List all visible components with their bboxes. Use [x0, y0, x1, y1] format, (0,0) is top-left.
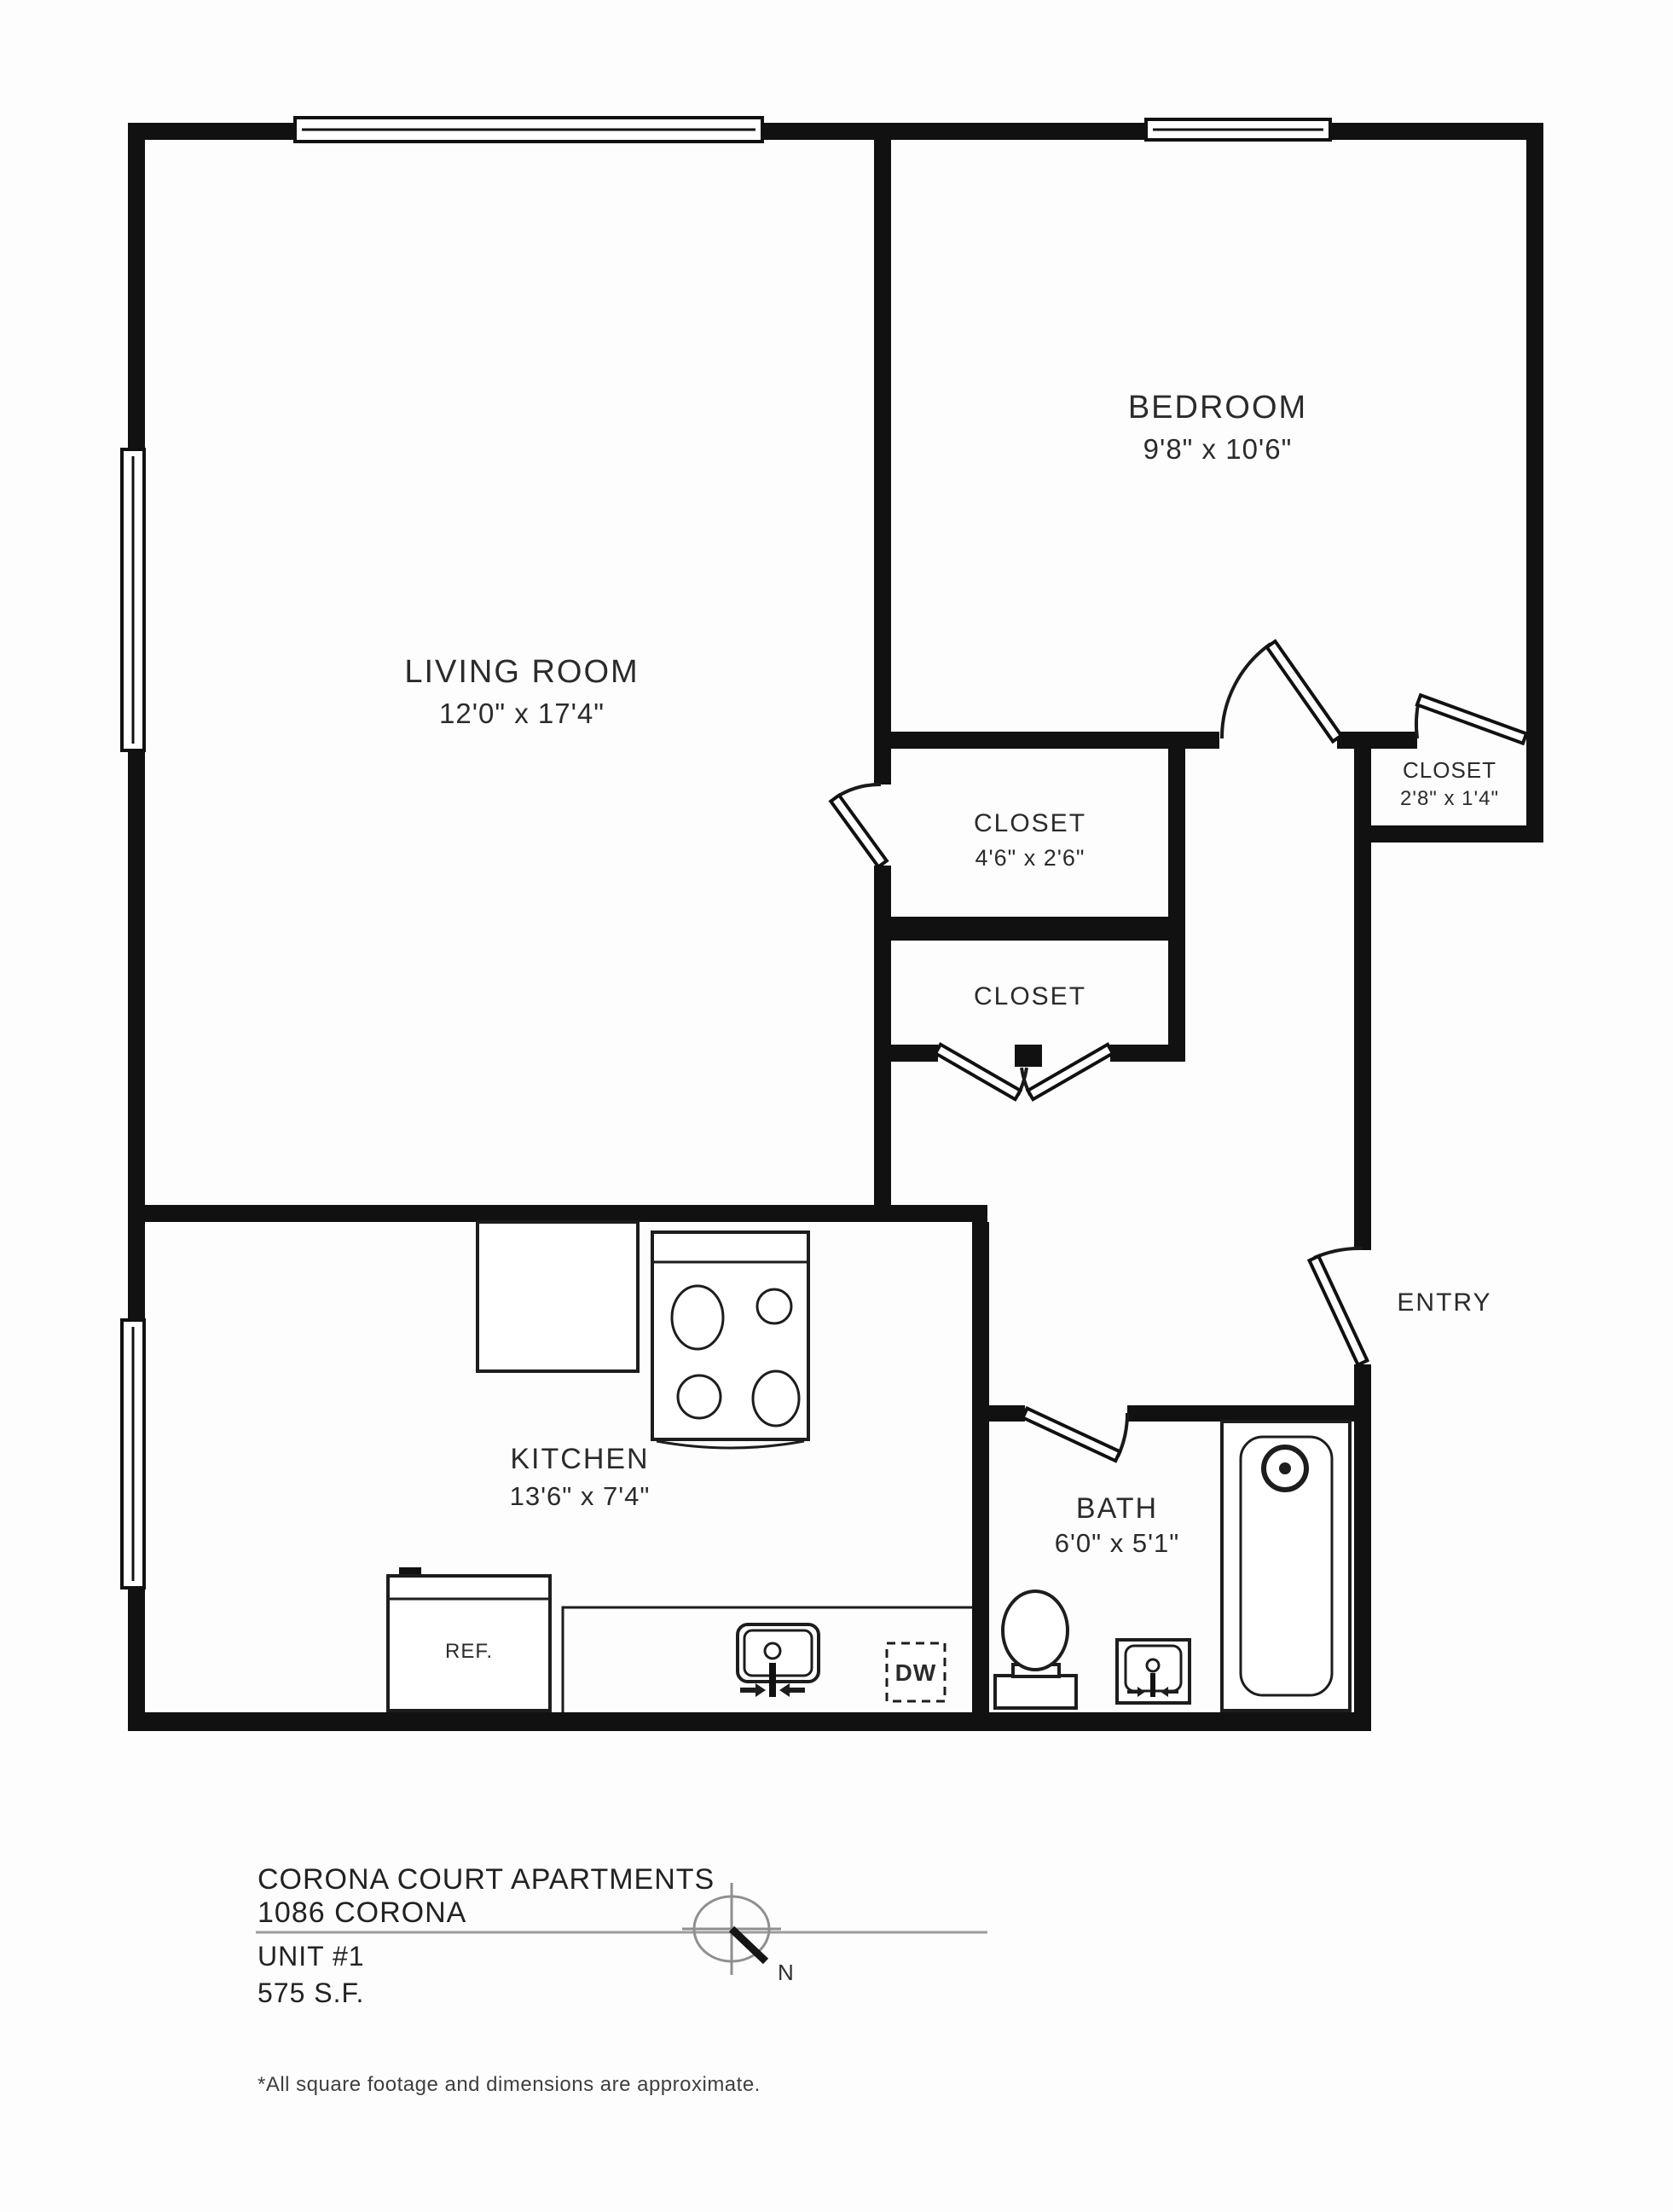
- closet-bedroom-dims: 2'8" x 1'4": [1400, 787, 1499, 810]
- wall-living-divider-upper: [874, 140, 891, 785]
- compass: N: [682, 1883, 794, 1985]
- wall-corridor-right-lower: [1354, 1364, 1371, 1731]
- window-living-top: [295, 118, 762, 142]
- wall-closet-separator: [891, 917, 1168, 941]
- wall-bedroom-bottom-left: [891, 732, 1219, 749]
- door-entry: [1310, 1248, 1368, 1365]
- title-unit: UNIT #1: [258, 1941, 365, 1972]
- toilet: [995, 1591, 1076, 1708]
- wall-bedroom-bottom-mid: [1337, 732, 1417, 749]
- bath-label: BATH: [1076, 1492, 1158, 1525]
- floor-plan-drawing: REF. DW: [0, 0, 1673, 2212]
- living-room-label: LIVING ROOM: [404, 654, 639, 690]
- bath-fixtures: [995, 1422, 1350, 1711]
- kitchen-sink: [738, 1624, 819, 1697]
- wall-corridor-right-upper: [1354, 732, 1371, 1250]
- bathtub: [1222, 1422, 1350, 1711]
- room-labels: LIVING ROOM 12'0" x 17'4" BEDROOM 9'8" x…: [404, 390, 1499, 1558]
- closet-lower-label: CLOSET: [974, 982, 1086, 1010]
- compass-needle: [732, 1929, 766, 1961]
- title-area: 575 S.F.: [258, 1977, 364, 2008]
- closet-main-dims: 4'6" x 2'6": [975, 845, 1085, 871]
- wall-bifold-center-post: [1015, 1045, 1042, 1067]
- bath-dims: 6'0" x 5'1": [1055, 1528, 1180, 1558]
- kitchen-sink-arrow-left: [740, 1683, 766, 1697]
- wall-outer-bottom: [128, 1712, 1371, 1731]
- wall-closet-bifold-right: [1110, 1045, 1185, 1062]
- kitchen-fixtures: REF. DW: [388, 1222, 972, 1712]
- wall-kitchen-bath-divider: [972, 1222, 989, 1731]
- footer-disclaimer: *All square footage and dimensions are a…: [258, 2073, 761, 2096]
- bedroom-dims: 9'8" x 10'6": [1143, 433, 1293, 465]
- closet-main-label: CLOSET: [974, 809, 1086, 837]
- wall-outer-right-upper: [1526, 123, 1543, 843]
- bath-faucet: [1150, 1673, 1155, 1697]
- kitchen-sink-arrow-right: [779, 1683, 805, 1697]
- tub-drain-dot: [1279, 1462, 1291, 1474]
- wall-closet-bifold-left: [891, 1045, 938, 1062]
- wall-kitchen-top: [128, 1205, 987, 1222]
- dishwasher-label: DW: [895, 1659, 937, 1686]
- door-living-hall: [831, 785, 887, 867]
- compass-north-label: N: [778, 1960, 794, 1985]
- wall-living-divider-lower: [874, 866, 891, 1222]
- wall-bedroom-closet-bottom: [1360, 825, 1543, 843]
- counter-cabinet: [478, 1222, 638, 1371]
- refrigerator-label: REF.: [445, 1640, 493, 1663]
- floor-plan-sheet: REF. DW: [0, 0, 1673, 2212]
- bath-sink: [1117, 1640, 1190, 1703]
- dishwasher: DW: [887, 1643, 945, 1701]
- window-living-left: [122, 449, 144, 750]
- window-kitchen-left: [122, 1320, 144, 1588]
- door-bedroom: [1222, 641, 1341, 741]
- kitchen-dims: 13'6" x 7'4": [510, 1481, 651, 1511]
- door-bedroom-closet: [1416, 695, 1526, 743]
- door-bath: [1022, 1409, 1127, 1462]
- kitchen-faucet: [769, 1663, 776, 1697]
- title-building: CORONA COURT APARTMENTS: [258, 1863, 715, 1896]
- window-bedroom-top: [1146, 119, 1330, 140]
- title-address: 1086 CORONA: [258, 1896, 466, 1929]
- closet-bedroom-label: CLOSET: [1403, 757, 1496, 783]
- wall-bath-top-right: [1127, 1405, 1354, 1422]
- wall-closet-right: [1168, 749, 1185, 1062]
- wall-bath-top-left: [987, 1405, 1025, 1422]
- refrigerator: REF.: [388, 1567, 550, 1711]
- kitchen-label: KITCHEN: [510, 1443, 649, 1475]
- title-block: CORONA COURT APARTMENTS 1086 CORONA UNIT…: [256, 1863, 987, 2008]
- bedroom-label: BEDROOM: [1128, 390, 1307, 426]
- entry-label: ENTRY: [1397, 1288, 1491, 1317]
- living-room-dims: 12'0" x 17'4": [439, 698, 605, 729]
- stove: [652, 1232, 808, 1448]
